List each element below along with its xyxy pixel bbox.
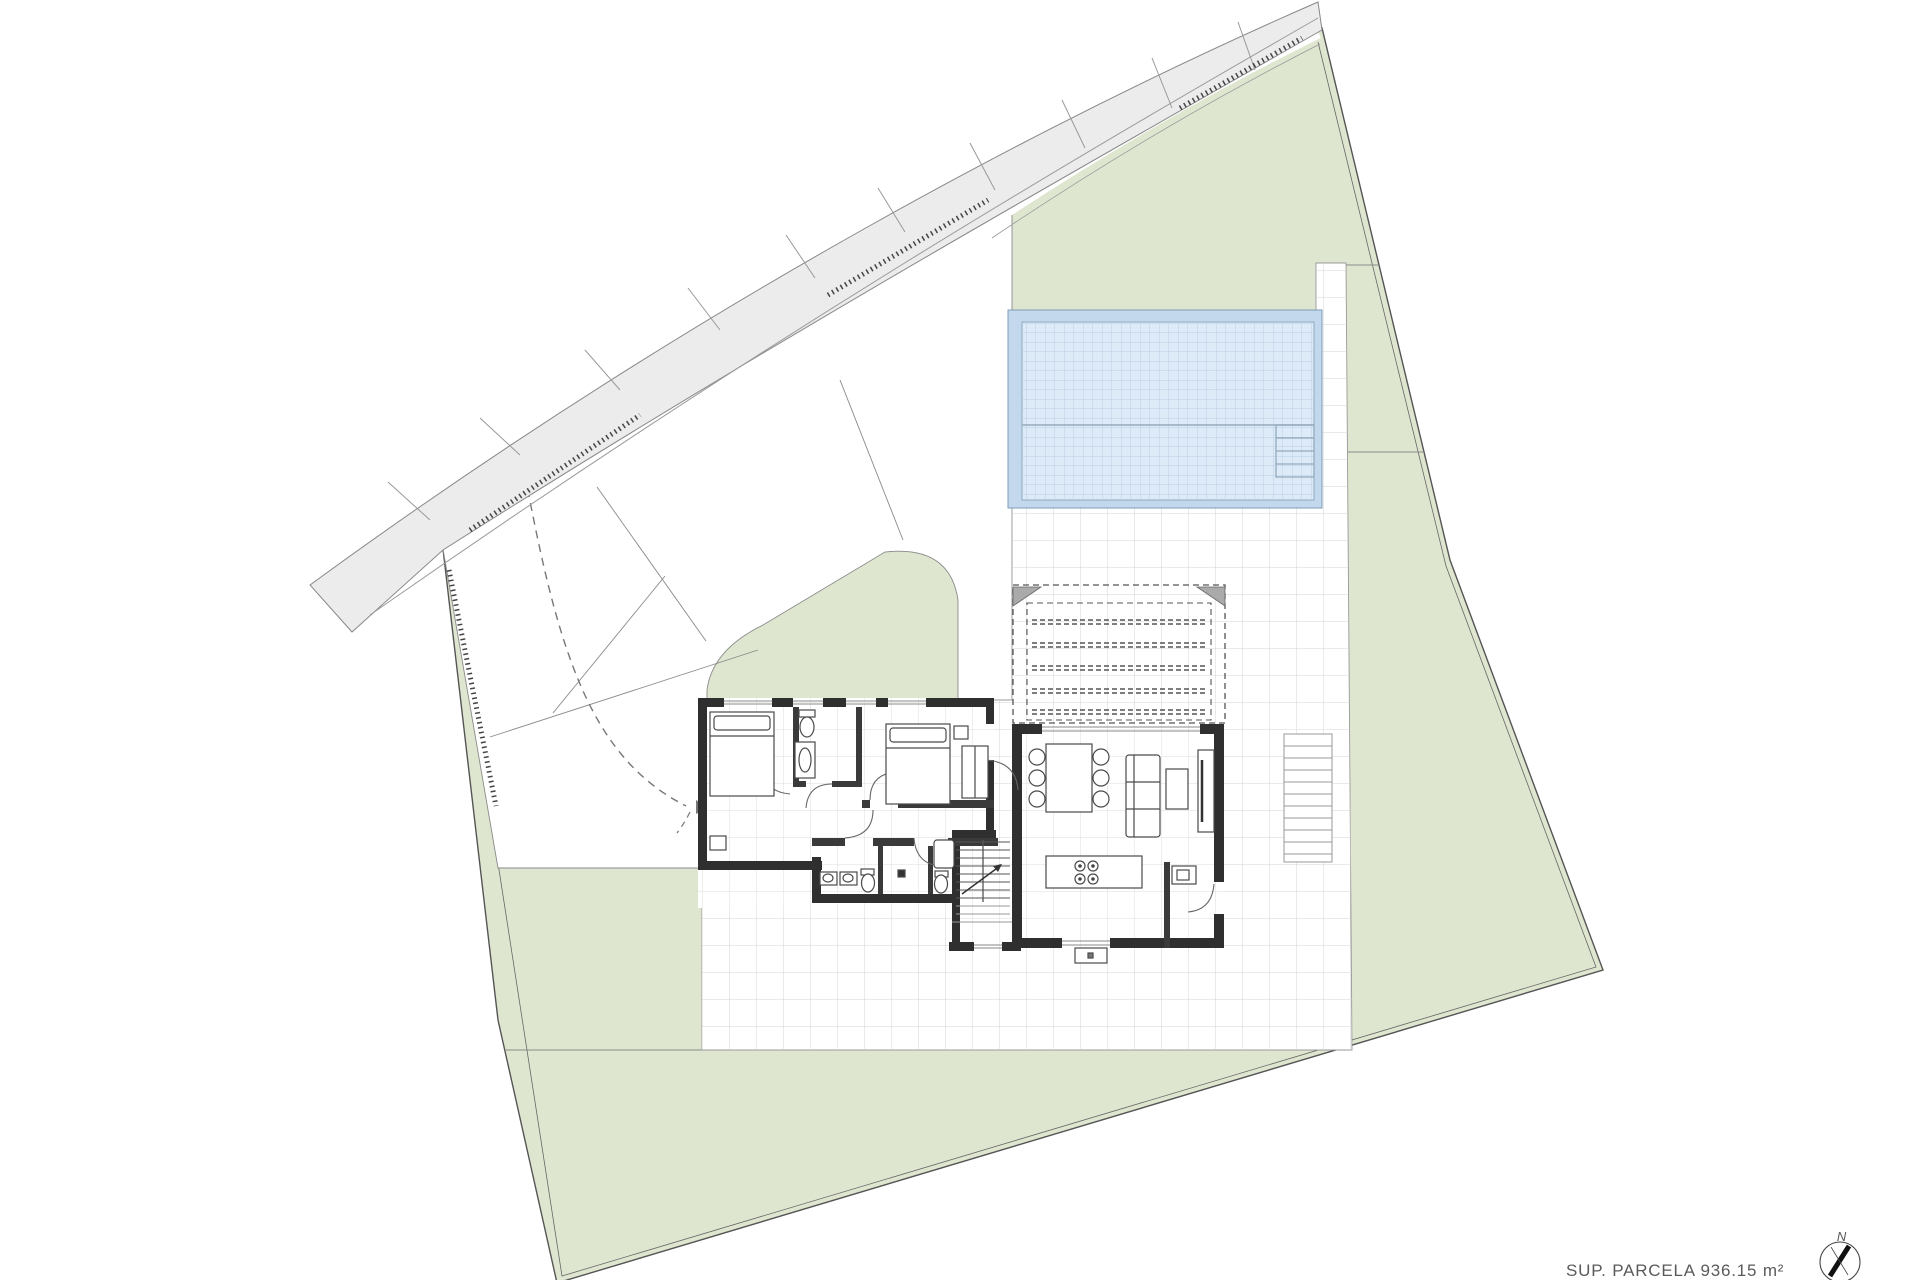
parcel-area-label: SUP. PARCELA 936.15 m²: [1566, 1261, 1784, 1280]
swimming-pool: [1008, 310, 1322, 508]
coffee-table: [1166, 769, 1188, 809]
site-plan-canvas: SUP. PARCELA 936.15 m² N: [0, 0, 1920, 1280]
kitchen-island: [1046, 856, 1142, 888]
dining-table: [1029, 744, 1109, 812]
exterior-stair: [1284, 734, 1332, 862]
pool-tile-grid: [1022, 322, 1314, 500]
annotations: SUP. PARCELA 936.15 m² N: [1566, 1229, 1860, 1280]
compass-north-label: N: [1837, 1229, 1847, 1244]
sofa: [1126, 755, 1160, 837]
utility-sink: [1172, 866, 1196, 884]
tv-unit: [1198, 750, 1214, 832]
site-plan-page: SUP. PARCELA 936.15 m² N: [0, 0, 1920, 1280]
south-bench: [1075, 948, 1107, 963]
north-compass: N: [1820, 1229, 1860, 1280]
